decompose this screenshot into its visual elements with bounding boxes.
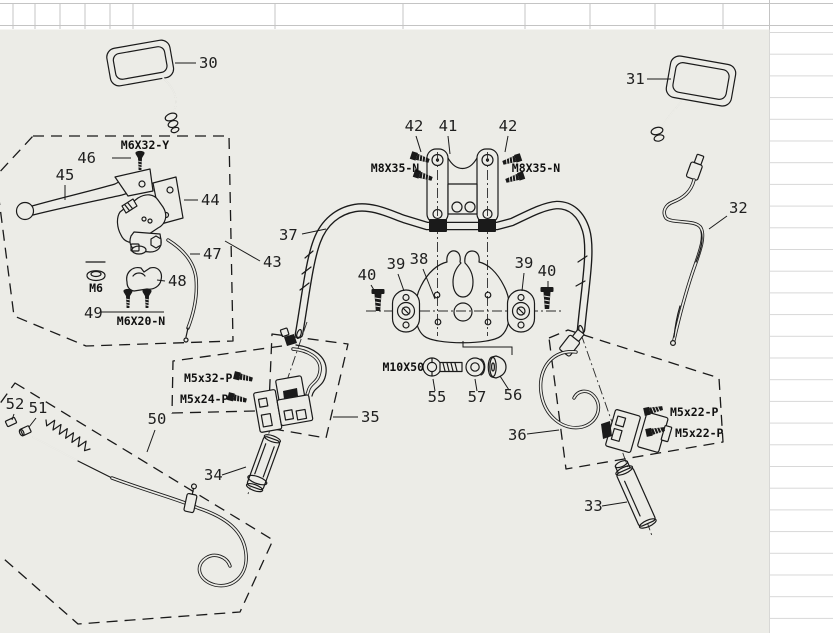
spec-label-m6x20-n: M6X20-N	[117, 314, 166, 328]
spec-label-m6x32-y: M6X32-Y	[121, 138, 170, 152]
part-label-30: 30	[199, 54, 218, 72]
part-label-57: 57	[468, 388, 487, 406]
spec-label-m5x22-p-top: M5x22-P	[670, 405, 719, 419]
lever-ball-end	[17, 203, 34, 220]
spec-label-m5x24-p: M5x24-P	[180, 392, 229, 406]
spec-label-m8x35-n-right: M8X35-N	[512, 161, 561, 175]
spec-label-m5x22-p-bottom: M5x22-P	[675, 426, 724, 440]
spreadsheet-window: 30 31 32 33 34 35 36 37 38 39 39 40 40 4…	[0, 0, 833, 633]
part-label-48: 48	[168, 272, 187, 290]
part-label-56: 56	[504, 386, 523, 404]
part-label-43: 43	[263, 253, 282, 271]
part-label-31: 31	[626, 70, 645, 88]
part-label-55: 55	[428, 388, 447, 406]
part-label-35: 35	[361, 408, 380, 426]
spec-label-m8x35-n-left: M8X35-N	[371, 161, 420, 175]
part-label-42-right: 42	[499, 117, 518, 135]
part-label-33: 33	[584, 497, 603, 515]
part-label-47: 47	[203, 245, 222, 263]
part-label-52: 52	[6, 395, 25, 413]
part-label-45: 45	[56, 166, 75, 184]
part-label-39-right: 39	[515, 254, 534, 272]
part-label-38: 38	[410, 250, 429, 268]
part-label-44: 44	[201, 191, 220, 209]
spec-label-m10x50: M10X50	[382, 360, 424, 374]
mount-39-left	[393, 290, 420, 332]
part-label-36: 36	[508, 426, 527, 444]
diagram-canvas	[0, 30, 770, 633]
part-label-51: 51	[29, 399, 48, 417]
part-label-49: 49	[84, 304, 103, 322]
mount-39-right	[508, 290, 535, 332]
embedded-parts-diagram[interactable]: 30 31 32 33 34 35 36 37 38 39 39 40 40 4…	[0, 0, 833, 633]
spec-label-m6: M6	[89, 281, 103, 295]
part-label-46: 46	[77, 149, 96, 167]
part-label-42-left: 42	[405, 117, 424, 135]
part-label-40-left: 40	[358, 266, 377, 284]
spec-label-m5x32-p: M5x32-P	[184, 371, 233, 385]
part-label-40-right: 40	[538, 262, 557, 280]
part-label-32: 32	[729, 199, 748, 217]
spreadsheet-grid-right[interactable]	[770, 0, 833, 633]
part-label-39-left: 39	[387, 255, 406, 273]
part-label-34: 34	[204, 466, 223, 484]
part-label-50: 50	[148, 410, 167, 428]
part-label-41: 41	[439, 117, 458, 135]
part-label-37: 37	[279, 226, 298, 244]
